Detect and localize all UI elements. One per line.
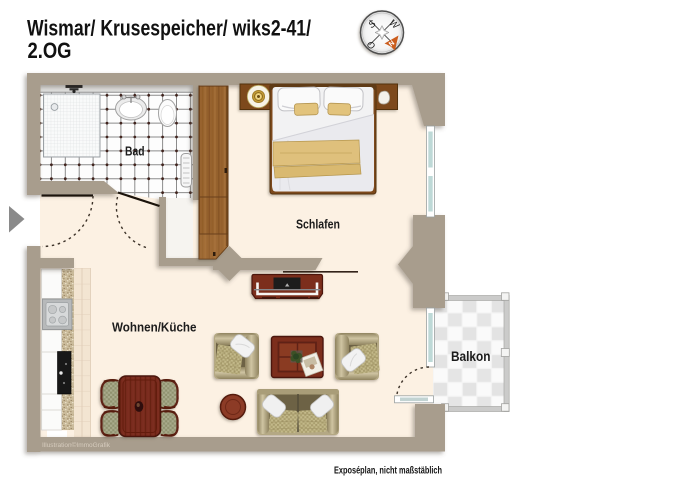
svg-text:Exposéplan, nicht maßstäblich: Exposéplan, nicht maßstäblich	[334, 466, 442, 477]
svg-text:Bad: Bad	[125, 145, 145, 159]
svg-text:Balkon: Balkon	[451, 348, 491, 364]
svg-text:Illustration©ImmoGrafik: Illustration©ImmoGrafik	[42, 441, 111, 449]
svg-text:Schlafen: Schlafen	[296, 217, 340, 232]
svg-text:2.OG: 2.OG	[28, 38, 72, 63]
svg-text:Wohnen/Küche: Wohnen/Küche	[112, 320, 197, 335]
svg-text:Wismar/ Krusespeicher/ wiks2-4: Wismar/ Krusespeicher/ wiks2-41/	[27, 16, 311, 41]
